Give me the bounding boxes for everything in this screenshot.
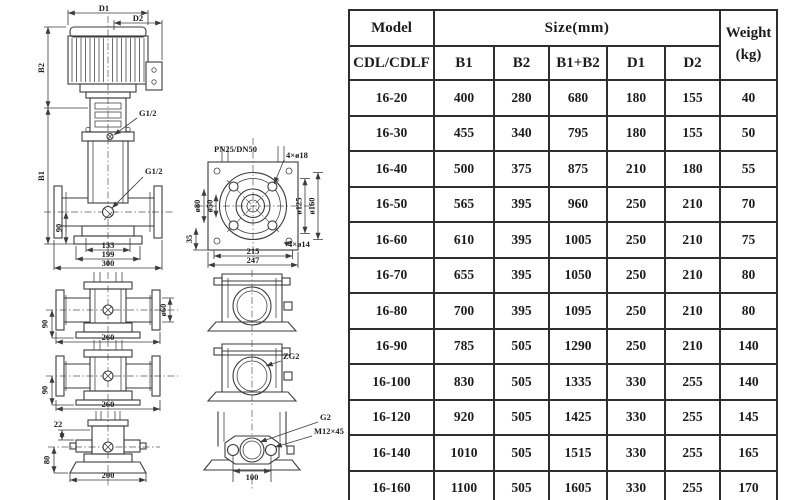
d1-cell: 180 [607,116,665,152]
b2-cell: 395 [494,222,549,258]
d1-cell: 250 [607,222,665,258]
b2-cell: 395 [494,187,549,223]
model-cell: 16-20 [349,80,434,116]
viewc-dim-80-label: 80 [42,456,52,465]
dia-50-label: ø50 [205,200,215,213]
spec-row: 16-50 565 395 960 250 210 70 [349,187,777,223]
d1-cell: 330 [607,435,665,471]
d1-cell: 330 [607,471,665,500]
model-cell: 16-60 [349,222,434,258]
d1-cell: 250 [607,187,665,223]
dim-d2-label: D2 [133,13,143,23]
port-view-a [208,270,296,336]
dim-300-label: 300 [102,258,115,268]
b1-cell: 830 [434,364,494,400]
spec-row: 16-70 655 395 1050 250 210 80 [349,258,777,294]
d1-cell: 180 [607,80,665,116]
dim-90-label: 90 [54,224,64,233]
b1b2-cell: 1290 [549,329,607,365]
b2-cell: 505 [494,364,549,400]
weight-cell: 40 [720,80,777,116]
viewc-dim-200-label: 200 [102,470,115,480]
viewb-dim-90-label: 90 [40,386,50,395]
col-header-d1: D1 [607,46,665,80]
b1-cell: 700 [434,293,494,329]
d2-cell: 210 [665,258,720,294]
b1-cell: 1100 [434,471,494,500]
weight-cell: 70 [720,187,777,223]
weight-cell: 75 [720,222,777,258]
dim-b1-label: B1 [36,171,46,181]
b1b2-cell: 1335 [549,364,607,400]
b1b2-cell: 875 [549,151,607,187]
b1b2-cell: 1095 [549,293,607,329]
col-header-d2: D2 [665,46,720,80]
oval-flange-view: G2 M12×45 100 [204,410,344,490]
spec-row: 16-100 830 505 1335 330 255 140 [349,364,777,400]
d2-cell: 155 [665,116,720,152]
d2-cell: 210 [665,222,720,258]
dia-125-label: ø125 [294,198,304,215]
model-header: Model [349,10,434,46]
pump-drawing-panel: D1 D2 B2 B1 90 133 199 300 [0,0,350,500]
b1-cell: 455 [434,116,494,152]
d1-cell: 330 [607,400,665,436]
b2-cell: 340 [494,116,549,152]
model-cell: 16-80 [349,293,434,329]
port-g12-top-label: G1/2 [139,108,156,118]
d1-cell: 250 [607,293,665,329]
b1-cell: 1010 [434,435,494,471]
d2-cell: 210 [665,293,720,329]
datasheet-page: D1 D2 B2 B1 90 133 199 300 [0,0,793,500]
model-cell: 16-160 [349,471,434,500]
model-cell: 16-70 [349,258,434,294]
viewa-dia-60-label: ø60 [158,304,168,317]
b2-cell: 395 [494,258,549,294]
b1-cell: 785 [434,329,494,365]
d1-cell: 250 [607,258,665,294]
b1b2-cell: 1005 [549,222,607,258]
b1-cell: 655 [434,258,494,294]
weight-cell: 55 [720,151,777,187]
pump-view-b: 90 260 [40,340,179,411]
spec-row: 16-140 1010 505 1515 330 255 165 [349,435,777,471]
flange-holes-label: 4×ø18 [286,150,308,160]
d2-cell: 210 [665,187,720,223]
b1-cell: 920 [434,400,494,436]
zg2-thread-label: ZG2 [283,351,300,361]
b2-cell: 505 [494,435,549,471]
viewa-dim-90-label: 90 [40,320,50,329]
dia-160-label: ø160 [307,198,317,215]
b1b2-cell: 960 [549,187,607,223]
b1b2-cell: 1050 [549,258,607,294]
base-holes-label: 4×ø14 [288,239,311,249]
flange-top-view: PN25/DN50 4×ø18 ø80 ø50 ø125 ø160 35 215 [184,138,323,268]
spec-row: 16-160 1100 505 1605 330 255 170 [349,471,777,500]
b2-cell: 505 [494,471,549,500]
port-g12-mid-label: G1/2 [145,166,162,176]
spec-row: 16-80 700 395 1095 250 210 80 [349,293,777,329]
pump-view-c: 22 80 200 [42,411,161,488]
b2-cell: 395 [494,293,549,329]
table-header-row-2: CDL/CDLF B1 B2 B1+B2 D1 D2 [349,46,777,80]
model-cell: 16-140 [349,435,434,471]
b1b2-cell: 1605 [549,471,607,500]
b1b2-cell: 1425 [549,400,607,436]
weight-cell: 80 [720,258,777,294]
spec-row: 16-30 455 340 795 180 155 50 [349,116,777,152]
d2-cell: 210 [665,329,720,365]
weight-header-line2: (kg) [721,45,776,67]
spec-row: 16-60 610 395 1005 250 210 75 [349,222,777,258]
d2-cell: 255 [665,400,720,436]
weight-header-line1: Weight [721,23,776,45]
weight-cell: 50 [720,116,777,152]
b2-cell: 505 [494,400,549,436]
pump-view-a: 90 260 ø60 [40,272,179,344]
d1-cell: 210 [607,151,665,187]
weight-cell: 80 [720,293,777,329]
viewb-dim-260-label: 260 [102,399,115,409]
weight-cell: 140 [720,364,777,400]
model-sub-header: CDL/CDLF [349,46,434,80]
b1-cell: 610 [434,222,494,258]
b1-cell: 500 [434,151,494,187]
weight-cell: 145 [720,400,777,436]
spec-row: 16-20 400 280 680 180 155 40 [349,80,777,116]
d1-cell: 250 [607,329,665,365]
d1-cell: 330 [607,364,665,400]
weight-cell: 170 [720,471,777,500]
col-header-b1: B1 [434,46,494,80]
model-cell: 16-50 [349,187,434,223]
model-cell: 16-30 [349,116,434,152]
table-header-row-1: Model Size(mm) Weight (kg) [349,10,777,46]
size-group-header: Size(mm) [434,10,720,46]
d2-cell: 255 [665,364,720,400]
d2-cell: 180 [665,151,720,187]
viewc-dim-22-label: 22 [54,419,63,429]
spec-row: 16-120 920 505 1425 330 255 145 [349,400,777,436]
dia-80-label: ø80 [192,200,202,213]
d2-cell: 255 [665,471,720,500]
dim-247-label: 247 [247,255,261,265]
b2-cell: 375 [494,151,549,187]
dim-100-label: 100 [246,472,259,482]
model-cell: 16-100 [349,364,434,400]
b2-cell: 505 [494,329,549,365]
model-cell: 16-40 [349,151,434,187]
weight-header: Weight (kg) [720,10,777,80]
model-cell: 16-90 [349,329,434,365]
dim-35-label: 35 [184,235,194,244]
weight-cell: 140 [720,329,777,365]
b1-cell: 400 [434,80,494,116]
pump-dimension-drawing: D1 D2 B2 B1 90 133 199 300 [0,0,350,500]
spec-row: 16-90 785 505 1290 250 210 140 [349,329,777,365]
b1-cell: 565 [434,187,494,223]
dim-b2-label: B2 [36,63,46,73]
dim-d1-label: D1 [99,3,109,13]
g2-thread-label: G2 [320,412,331,422]
col-header-b1b2: B1+B2 [549,46,607,80]
b1b2-cell: 680 [549,80,607,116]
flange-rating-label: PN25/DN50 [214,144,257,154]
b2-cell: 280 [494,80,549,116]
weight-cell: 165 [720,435,777,471]
terminal-box [146,62,162,90]
model-cell: 16-120 [349,400,434,436]
front-view: D1 D2 B2 B1 90 133 199 300 [36,3,174,270]
col-header-b2: B2 [494,46,549,80]
spec-table: Model Size(mm) Weight (kg) CDL/CDLF B1 B… [348,9,778,500]
b1b2-cell: 1515 [549,435,607,471]
spec-row: 16-40 500 375 875 210 180 55 [349,151,777,187]
b1b2-cell: 795 [549,116,607,152]
d2-cell: 255 [665,435,720,471]
port-view-b: ZG2 [208,340,300,406]
bolt-spec-label: M12×45 [314,426,344,436]
d2-cell: 155 [665,80,720,116]
